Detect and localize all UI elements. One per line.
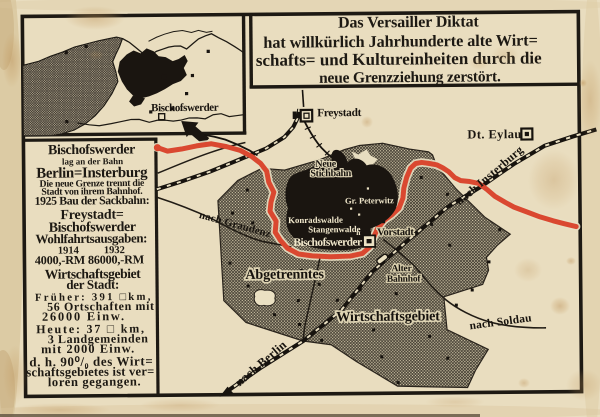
svg-text:Das Versailler Diktat: Das Versailler Diktat: [338, 13, 480, 31]
svg-text:Bischofswerder: Bischofswerder: [293, 235, 362, 249]
svg-text:neue Grenzziehung zerstört.: neue Grenzziehung zerstört.: [319, 68, 501, 87]
svg-text:Bischofswerder: Bischofswerder: [151, 102, 219, 115]
svg-text:Gr. Peterwitz: Gr. Peterwitz: [345, 195, 394, 205]
svg-text:der Stadt:: der Stadt:: [66, 277, 119, 292]
svg-text:Wirtschaftsgebiet: Wirtschaftsgebiet: [336, 308, 440, 325]
svg-text:Bahnhof: Bahnhof: [387, 274, 422, 284]
svg-text:Freystadt: Freystadt: [317, 107, 362, 119]
svg-text:Abgetrenntes: Abgetrenntes: [245, 266, 324, 283]
svg-text:Alter: Alter: [391, 264, 412, 274]
svg-text:1925 Bau der Sackbahn:: 1925 Bau der Sackbahn:: [35, 193, 150, 208]
svg-text:loren gegangen.: loren gegangen.: [48, 374, 142, 389]
svg-text:Stangenwalde: Stangenwalde: [308, 224, 360, 234]
svg-text:Vorstadt: Vorstadt: [377, 227, 414, 238]
svg-text:Stichbahn: Stichbahn: [310, 168, 351, 179]
svg-text:Wohlfahrtsausgaben:: Wohlfahrtsausgaben:: [35, 230, 147, 246]
svg-text:Dt. Eylau: Dt. Eylau: [467, 127, 521, 141]
